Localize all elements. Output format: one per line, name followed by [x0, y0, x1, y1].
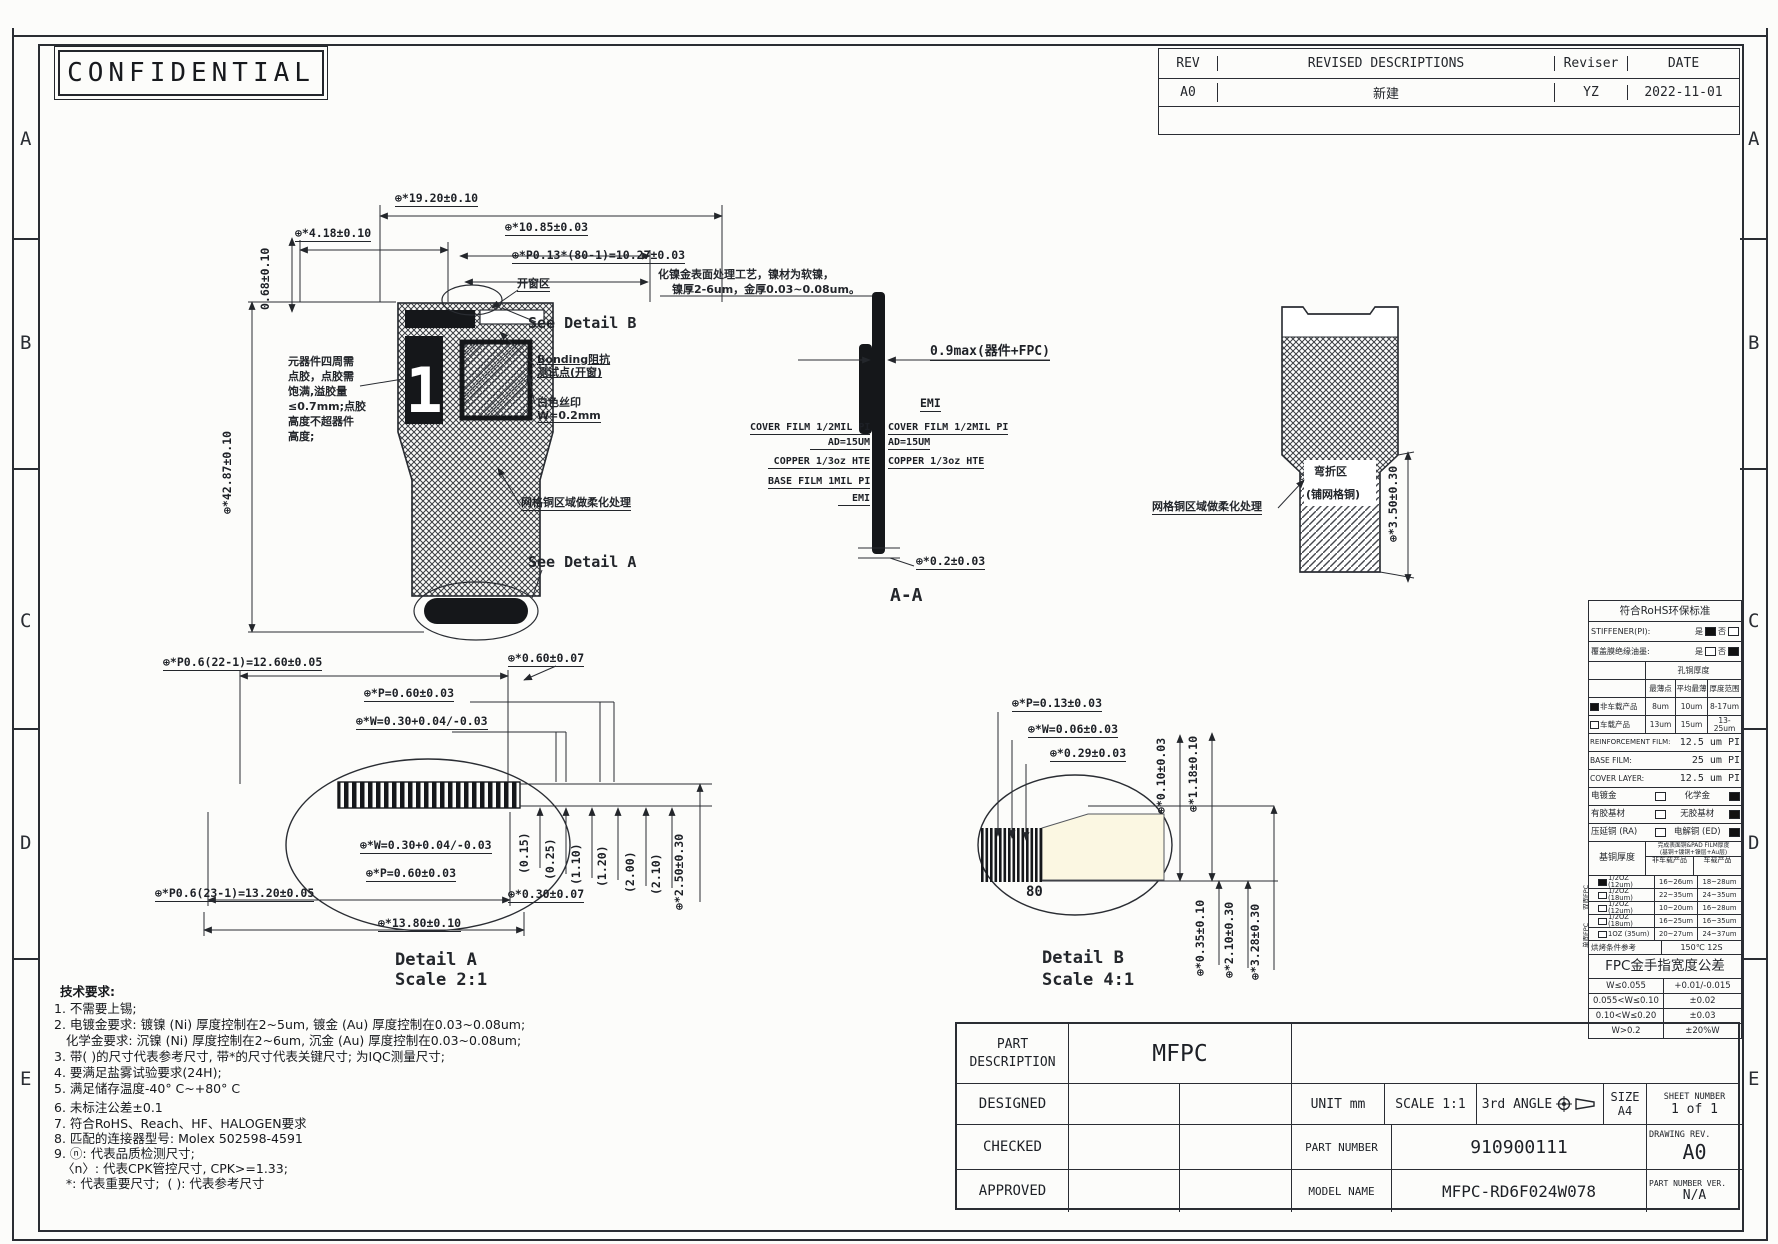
finger-tol: ±0.02	[1663, 994, 1741, 1008]
mfpc-text: MFPC	[1152, 1041, 1207, 1067]
basefilm-value: 25 um PI	[1632, 756, 1740, 766]
model-name-value-cell: MFPC-RD6F024W078	[1392, 1170, 1647, 1212]
finish-title-1: 完成表面铜&PAD FILM厚度	[1646, 842, 1741, 850]
tech-note-line: 〈n〉: 代表CPK管控尺寸, CPK>=1.33;	[54, 1161, 288, 1177]
bend-zone-label-2: (铺网格铜)	[1306, 488, 1360, 501]
aa-copper-right: COPPER 1/3oz HTE	[888, 456, 984, 469]
detail-b-caption: Detail B	[1042, 948, 1124, 968]
aa-emi-top: EMI	[920, 396, 941, 412]
checkbox-empty	[1598, 905, 1607, 912]
nonauto-range: 8-17um	[1707, 698, 1741, 715]
checked-label: CHECKED	[983, 1139, 1042, 1155]
copper-row: 1/2OZ (18um) 22~35um 24~35um	[1589, 888, 1741, 901]
checked-date	[1180, 1125, 1292, 1170]
model-name-label-cell: MODEL NAME	[1292, 1170, 1392, 1212]
label-silkscreen: 白色丝印 W=0.2mm	[537, 396, 601, 423]
da-dim-250: ⊕*2.50±0.30	[672, 834, 686, 910]
holecopper-title: 孔铜厚度	[1645, 662, 1741, 679]
dim-42-87: ⊕*42.87±0.10	[220, 431, 234, 514]
third-angle-label: 3rd ANGLE	[1482, 1097, 1552, 1112]
db-dim-118: ⊕*1.18±0.10	[1186, 736, 1200, 812]
db-dim-035: ⊕*0.35±0.10	[1193, 900, 1207, 976]
scale-label: SCALE 1:1	[1395, 1097, 1465, 1112]
aa-base-film: BASE FILM 1MIL PI	[768, 476, 870, 489]
aa-cover-left: COVER FILM 1/2MIL PI	[750, 422, 870, 435]
scale-cell: SCALE 1:1	[1385, 1084, 1477, 1125]
unit-cell: UNIT mm	[1292, 1084, 1385, 1125]
aa-ad-right: AD=15UM	[888, 437, 930, 450]
copper-row-auto: 16~28um	[1697, 902, 1741, 914]
sheet-number-value: 1 of 1	[1671, 1102, 1718, 1117]
basefilm-label: BASE FILM:	[1590, 757, 1632, 765]
nonauto-min: 8um	[1645, 698, 1675, 715]
checkbox-filled	[1729, 792, 1740, 801]
checkbox-filled	[1598, 879, 1607, 886]
copper-row: 1/2OZ (18um) 16~25um 16~35um	[1589, 914, 1741, 927]
ra-copper-label: 压延铜 (RA)	[1589, 828, 1655, 837]
tech-note-line: 化学金要求: 沉镍 (Ni) 厚度控制在2~6um, 沉金 (Au) 厚度控制在…	[54, 1033, 521, 1049]
da-dim-p060: ⊕*P=0.60±0.03	[364, 686, 454, 702]
auto-range: 13-25um	[1707, 716, 1741, 733]
aa-cover-right: COVER FILM 1/2MIL PI	[888, 422, 1008, 435]
designed-date	[1180, 1084, 1292, 1125]
model-name-label: MODEL NAME	[1308, 1185, 1374, 1198]
rohs-gold-row: 电镀金 化学金	[1589, 787, 1741, 805]
rohs-copper-type-row: 压延铜 (RA) 电解铜 (ED)	[1589, 823, 1741, 841]
tech-note-line: *: 代表重要尺寸; ( ): 代表参考尺寸	[54, 1176, 264, 1192]
rohs-holecopper-cols: 最薄点 平均最薄 厚度范围	[1589, 679, 1741, 697]
approved-date	[1180, 1170, 1292, 1212]
drawing-rev-cell: DRAWING REV. A0	[1647, 1125, 1742, 1170]
finger-tol: ±0.03	[1663, 1009, 1741, 1023]
aa-dim-02: ⊕*0.2±0.03	[916, 554, 985, 570]
label-mesh-copper: 网格铜区域做柔化处理	[521, 496, 631, 511]
aa-copper-left: COPPER 1/3oz HTE	[768, 456, 870, 469]
finger-row: 0.10<W≤0.20 ±0.03	[1589, 1008, 1741, 1023]
rohs-holecopper-header: 孔铜厚度	[1589, 661, 1741, 679]
checked-signature	[1069, 1125, 1180, 1170]
checkbox-filled	[1729, 828, 1740, 837]
size-cell: SIZE A4	[1604, 1084, 1647, 1125]
label-window-area: 开窗区	[517, 277, 550, 292]
db-dim-328: ⊕*3.28±0.30	[1248, 904, 1262, 980]
yes-label: 是	[1695, 628, 1703, 636]
da-dim-060: ⊕*0.60±0.07	[508, 651, 584, 667]
copper-row-label: 1OZ (35um)	[1607, 931, 1654, 938]
checkbox-filled	[1590, 703, 1599, 711]
tech-note-line: 8. 匹配的连接器型号: Molex 502598-4591	[54, 1131, 303, 1147]
part-description-value: MFPC	[1069, 1024, 1292, 1084]
checkbox-empty	[1655, 828, 1666, 837]
dim-19-20: ⊕*19.20±0.10	[395, 191, 478, 207]
tech-note-line: 1. 不需要上锡;	[54, 1001, 137, 1017]
da-dim-030: ⊕*0.30±0.07	[508, 887, 584, 903]
coverlayer-label: COVER LAYER:	[1590, 775, 1644, 783]
da-dim-w030: ⊕*W=0.30+0.04/-0.03	[356, 714, 488, 730]
copper-row-nonauto: 20~27um	[1654, 928, 1697, 940]
da-dim-1380: ⊕*13.80±0.10	[378, 916, 461, 932]
coverink-label: 覆盖膜绝缘油墨:	[1591, 648, 1693, 656]
aa-surface-note-2: 镍厚2-6um，金厚0.03~0.08um。	[672, 283, 860, 296]
bake-value: 150℃ 12S	[1661, 941, 1741, 954]
no-label: 否	[1718, 648, 1726, 656]
detail-a-caption: Detail A	[395, 950, 477, 970]
rohs-title-text: 符合RoHS环保标准	[1620, 606, 1711, 617]
part-description-label-2: DESCRIPTION	[969, 1054, 1055, 1072]
db-dim-210: ⊕*2.10±0.30	[1222, 902, 1236, 978]
checkbox-filled	[1705, 627, 1716, 636]
col-avg: 平均最薄	[1675, 680, 1707, 697]
third-angle-projection-icon	[1554, 1093, 1598, 1115]
tech-note-line: 3. 带( )的尺寸代表参考尺寸, 带*的尺寸代表关键尺寸; 为IQC测量尺寸;	[54, 1049, 445, 1065]
tech-note-line: 6. 未标注公差±0.1	[54, 1100, 163, 1116]
finger-tolerance-title-row: FPC金手指宽度公差	[1589, 954, 1741, 978]
da-dim-w030-b: ⊕*W=0.30+0.04/-0.03	[360, 838, 492, 854]
drawing-rev-value: A0	[1682, 1140, 1706, 1164]
model-name-value: MFPC-RD6F024W078	[1442, 1182, 1596, 1201]
reinforcement-value: 12.5 um PI	[1671, 738, 1740, 748]
auto-min: 13um	[1645, 716, 1675, 733]
copper-row-auto: 16~35um	[1697, 915, 1741, 927]
adhesiveless-label: 无胶基材	[1666, 810, 1730, 819]
rohs-adhesive-row: 有胶基材 无胶基材	[1589, 805, 1741, 823]
da-vdim-015: (0.15)	[517, 832, 531, 874]
ed-copper-label: 电解铜 (ED)	[1666, 828, 1730, 837]
rohs-basecopper-header: 基铜厚度 完成表面铜&PAD FILM厚度 (基铜+镀铜+镍层+Au层) 非车载…	[1589, 841, 1741, 875]
da-dim-p06-22: ⊕*P0.6(22-1)=12.60±0.05	[163, 655, 322, 671]
nonauto-avg: 10um	[1675, 698, 1707, 715]
unit-label: UNIT mm	[1311, 1097, 1366, 1112]
da-dim-p060-b: ⊕*P=0.60±0.03	[366, 866, 456, 882]
coverlayer-value: 12.5 um PI	[1644, 774, 1740, 784]
checkbox-empty	[1598, 918, 1607, 925]
col-min: 最薄点	[1645, 680, 1675, 697]
copper-row-label: 1/2OZ (18um)	[1607, 914, 1654, 928]
stiffener-label: STIFFENER(PI):	[1591, 628, 1693, 636]
approved-signature	[1069, 1170, 1180, 1212]
checkbox-empty	[1655, 792, 1666, 801]
finger-row: 0.055<W≤0.10 ±0.02	[1589, 993, 1741, 1008]
col-nonauto: 非车载产品	[1646, 857, 1693, 875]
see-detail-a: See Detail A	[528, 553, 636, 571]
da-vdim-110: (1.10)	[569, 843, 583, 885]
da-vdim-025: (0.25)	[543, 838, 557, 880]
da-dim-p06-23: ⊕*P0.6(23-1)=13.20±0.05	[155, 886, 314, 902]
copper-row: 1/2OZ (12um) 10~20um 16~28um	[1589, 901, 1741, 914]
dim-3-50: ⊕*3.50±0.30	[1386, 466, 1400, 542]
see-detail-b: See Detail B	[528, 314, 636, 332]
part-number-label-cell: PART NUMBER	[1292, 1125, 1392, 1170]
rohs-nonauto-row: 非车载产品 8um 10um 8-17um	[1589, 697, 1741, 715]
copper-row-nonauto: 16~25um	[1654, 915, 1697, 927]
rohs-auto-row: 车载产品 13um 15um 13-25um	[1589, 715, 1741, 733]
rohs-reinforcement-row: REINFORCEMENT FILM: 12.5 um PI	[1589, 733, 1741, 751]
tech-note-line: 7. 符合RoHS、Reach、HF、HALOGEN要求	[54, 1116, 307, 1132]
yes-label: 是	[1695, 648, 1703, 656]
checkbox-empty	[1598, 931, 1607, 938]
copper-row-auto: 24~35um	[1697, 889, 1741, 901]
rohs-basefilm-row: BASE FILM: 25 um PI	[1589, 751, 1741, 769]
db-dim-010: ⊕*0.10±0.03	[1154, 738, 1168, 814]
da-vdim-210: (2.10)	[649, 853, 663, 895]
size-label: SIZE	[1611, 1090, 1640, 1104]
aa-ad-left: AD=15UM	[810, 437, 870, 450]
component-marking: 1	[405, 354, 442, 427]
rohs-coverlayer-row: COVER LAYER: 12.5 um PI	[1589, 769, 1741, 787]
dim-0-68: 0.68±0.10	[258, 248, 272, 310]
rohs-coverink-row: 覆盖膜绝缘油墨: 是 否	[1589, 641, 1741, 661]
da-vdim-120: (1.20)	[595, 845, 609, 887]
finger-tol: +0.01/-0.015	[1663, 979, 1741, 993]
approved-cell: APPROVED	[957, 1170, 1069, 1212]
copper-row: 1OZ (35um) 20~27um 24~37um	[1589, 927, 1741, 940]
db-label-80: 80	[1026, 884, 1043, 900]
designed-cell: DESIGNED	[957, 1084, 1069, 1125]
note-glue: 元器件四周需 点胶，点胶需 饱满,溢胶量 ≤0.7mm;点胶 高度不超器件 高度…	[288, 354, 366, 444]
da-vdim-200: (2.00)	[623, 851, 637, 893]
checkbox-empty	[1705, 647, 1716, 656]
col-range: 厚度范围	[1707, 680, 1741, 697]
checkbox-filled	[1729, 810, 1740, 819]
base-copper-title: 基铜厚度	[1589, 842, 1645, 875]
copper-row-nonauto: 16~26um	[1654, 876, 1697, 888]
chem-gold-label: 化学金	[1666, 792, 1730, 801]
angle-cell: 3rd ANGLE	[1477, 1084, 1604, 1125]
auto-avg: 15um	[1675, 716, 1707, 733]
label-bonding: Bonding阻抗 测试点(开窗)	[537, 353, 610, 379]
drawing-rev-label: DRAWING REV.	[1647, 1130, 1710, 1140]
aa-dim-09max: 0.9max(器件+FPC)	[930, 340, 1050, 361]
part-number-ver-label: PART NUMBER VER.	[1647, 1179, 1726, 1188]
part-number-ver-cell: PART NUMBER VER. N/A	[1647, 1170, 1742, 1212]
checkbox-empty	[1655, 810, 1666, 819]
copper-row-nonauto: 22~35um	[1654, 889, 1697, 901]
part-description-label-1: PART	[997, 1036, 1028, 1054]
dim-p013: ⊕*P0.13*(80-1)=10.27±0.03	[512, 248, 685, 264]
designed-signature	[1069, 1084, 1180, 1125]
aa-caption: A-A	[890, 585, 923, 606]
detail-a-scale: Scale 2:1	[395, 970, 487, 990]
group-double-fpc: 双面FPC	[1580, 885, 1590, 910]
bend-zone-label-1: 弯折区	[1314, 465, 1347, 478]
col-auto: 车载产品	[1693, 857, 1741, 875]
copper-row-auto: 18~28um	[1697, 876, 1741, 888]
bake-label: 烘烤条件参考	[1589, 944, 1661, 952]
approved-label: APPROVED	[979, 1183, 1046, 1199]
part-number-ver-value: N/A	[1683, 1188, 1706, 1203]
title-block-empty-top	[1292, 1024, 1740, 1084]
tech-note-line: 2. 电镀金要求: 镀镍 (Ni) 厚度控制在2~5um, 镀金 (Au) 厚度…	[54, 1017, 525, 1033]
sheet-number-cell: SHEET NUMBER 1 of 1	[1647, 1084, 1742, 1125]
bake-row: 烘烤条件参考 150℃ 12S	[1589, 940, 1741, 954]
rohs-stiffener-row: STIFFENER(PI): 是 否	[1589, 621, 1741, 641]
part-number-value: 910900111	[1470, 1137, 1568, 1158]
size-value: A4	[1618, 1104, 1632, 1118]
dim-10-85: ⊕*10.85±0.03	[505, 220, 588, 236]
auto-label: 车载产品	[1600, 721, 1630, 729]
rohs-title: 符合RoHS环保标准	[1589, 601, 1741, 621]
detail-b-scale: Scale 4:1	[1042, 970, 1134, 990]
aa-surface-note-1: 化镍金表面处理工艺，镍材为软镍，	[658, 268, 834, 281]
dim-4-18: ⊕*4.18±0.10	[295, 226, 371, 242]
rohs-table: 符合RoHS环保标准 STIFFENER(PI): 是 否 覆盖膜绝缘油墨: 是…	[1588, 600, 1742, 1039]
copper-row: 1/2OZ (12um) 16~26um 18~28um	[1589, 875, 1741, 888]
db-dim-w006: ⊕*W=0.06±0.03	[1028, 722, 1118, 738]
db-dim-p013: ⊕*P=0.13±0.03	[1012, 696, 1102, 712]
finger-tolerance-title: FPC金手指宽度公差	[1605, 960, 1725, 974]
tech-notes-title: 技术要求:	[60, 984, 115, 1000]
checkbox-empty	[1728, 627, 1739, 636]
tech-note-line: 4. 要满足盐雾试验要求(24H);	[54, 1065, 222, 1081]
drawing-sheet: A B C D E A B C D E CONFIDENTIAL REV REV…	[0, 0, 1778, 1244]
finger-range: 0.055<W≤0.10	[1589, 997, 1663, 1006]
tech-note-line: 9. ⓝ: 代表品质检测尺寸;	[54, 1146, 195, 1162]
checkbox-empty	[1598, 892, 1607, 899]
part-number-value-cell: 910900111	[1392, 1125, 1647, 1170]
adhesive-label: 有胶基材	[1589, 810, 1655, 819]
db-dim-029: ⊕*0.29±0.03	[1050, 746, 1126, 762]
copper-row-auto: 24~37um	[1697, 928, 1741, 940]
finger-row: W≤0.055 +0.01/-0.015	[1589, 978, 1741, 993]
aa-emi-bottom: EMI	[838, 493, 870, 506]
finger-range: W≤0.055	[1589, 982, 1663, 991]
finger-range: 0.10<W≤0.20	[1589, 1012, 1663, 1021]
checkbox-empty	[1590, 721, 1599, 729]
checkbox-filled	[1728, 647, 1739, 656]
reinforcement-label: REINFORCEMENT FILM:	[1590, 739, 1671, 746]
plated-gold-label: 电镀金	[1589, 792, 1655, 801]
group-single-fpc: 单面FPC	[1580, 923, 1590, 948]
nonauto-label: 非车载产品	[1600, 703, 1638, 711]
designed-label: DESIGNED	[979, 1096, 1046, 1112]
title-block: PART DESCRIPTION MFPC DESIGNED UNIT mm S…	[955, 1022, 1740, 1210]
tech-note-line: 5. 满足储存温度-40° C~+80° C	[54, 1081, 240, 1097]
part-description-cell: PART DESCRIPTION	[957, 1024, 1069, 1084]
copper-row-nonauto: 10~20um	[1654, 902, 1697, 914]
right-mesh-label: 网格铜区域做柔化处理	[1152, 500, 1262, 515]
checked-cell: CHECKED	[957, 1125, 1069, 1170]
part-number-label: PART NUMBER	[1305, 1141, 1378, 1154]
sheet-number-label: SHEET NUMBER	[1664, 1092, 1725, 1102]
no-label: 否	[1718, 628, 1726, 636]
